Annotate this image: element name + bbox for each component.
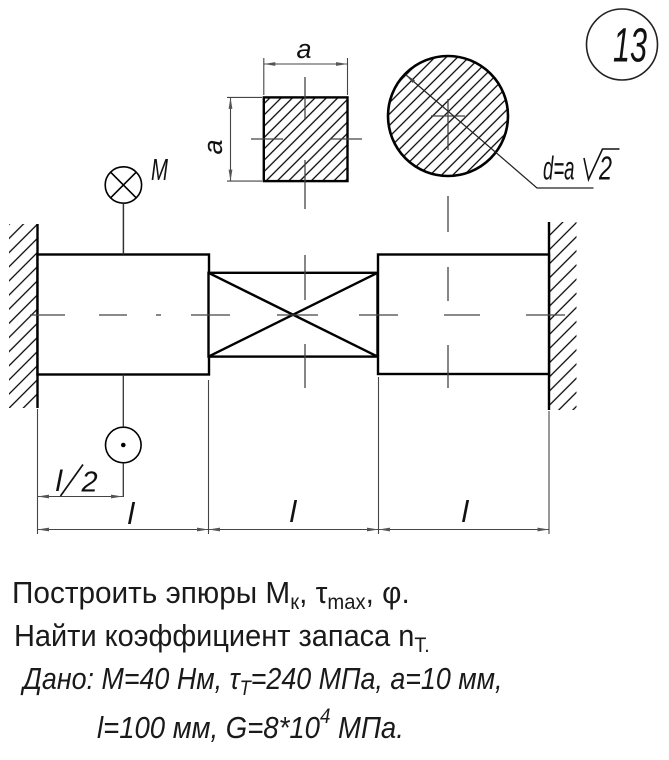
svg-text:2: 2	[81, 467, 98, 499]
svg-text:l: l	[290, 494, 298, 529]
svg-text:l: l	[128, 496, 136, 531]
svg-text:l: l	[462, 494, 470, 529]
svg-text:M: M	[151, 152, 168, 187]
svg-text:13: 13	[613, 20, 647, 73]
svg-text:a: a	[296, 34, 311, 64]
svg-text:d=a: d=a	[543, 150, 575, 187]
svg-text:2: 2	[598, 150, 612, 187]
svg-text:a: a	[198, 139, 228, 154]
